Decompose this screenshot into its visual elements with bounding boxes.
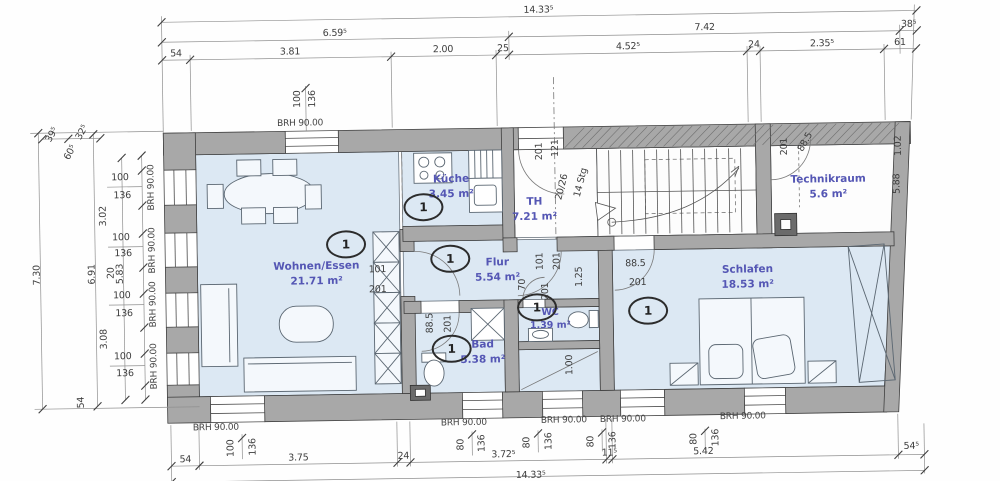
dim-left-chain: 3.08 xyxy=(100,329,110,350)
room-name: Flur xyxy=(486,255,510,270)
door-dim: 201 xyxy=(369,285,387,295)
brh-label: BRH 90.00 xyxy=(150,343,160,389)
brh-label: BRH 90.00 xyxy=(148,227,158,273)
room-name: TH xyxy=(526,195,542,210)
dim-left-chain: 100 xyxy=(111,173,129,183)
window-dim: 136 xyxy=(544,432,554,450)
dim-bottom-detail: 54 xyxy=(179,455,191,465)
dim-left-overall: 7.30 xyxy=(33,265,43,286)
dim-bottom-detail: 3.72⁵ xyxy=(491,450,515,460)
room-name: Bad xyxy=(471,337,494,352)
stair-label: 121 xyxy=(551,139,561,157)
dim-top-overall: 14.33⁵ xyxy=(523,5,553,15)
floor-plan-scene: Wohnen/Essen 21.71 m² Küche 3.45 m² Flur… xyxy=(0,0,1000,481)
room-name: Küche xyxy=(433,172,469,187)
door-dim: 88.5 xyxy=(425,313,435,334)
marker-number: 1 xyxy=(342,237,351,251)
floor-plan: Wohnen/Essen 21.71 m² Küche 3.45 m² Flur… xyxy=(0,0,1000,481)
dim-left-chain: 136 xyxy=(115,309,133,319)
door-dim: 201 xyxy=(541,282,551,300)
door-dim: 201 xyxy=(629,278,647,288)
dim-top-mid: 7.42 xyxy=(694,23,715,33)
dim-bottom-detail: 54⁵ xyxy=(904,442,919,452)
stair-label: 201 xyxy=(535,143,545,161)
window-dim: 80 xyxy=(689,433,699,445)
dim-right: 5.88 xyxy=(892,174,902,195)
dim-left-chain: 20 xyxy=(107,267,117,279)
furniture-shelf xyxy=(373,232,401,384)
dim-top-detail: 2.35⁵ xyxy=(810,39,834,49)
dim-left-mid: 6.91 xyxy=(88,264,98,285)
door-dim: 70 xyxy=(518,279,528,291)
door-dim: 101 xyxy=(535,253,545,271)
window-dim: 136 xyxy=(608,431,618,449)
dim-left-chain: 136 xyxy=(114,249,132,259)
door-dim: 201 xyxy=(780,138,790,156)
dim-top-detail: 54 xyxy=(170,49,182,59)
window-dim: 100 xyxy=(226,439,236,457)
marker-number: 1 xyxy=(644,304,653,318)
dim-top-detail: 24 xyxy=(748,40,760,50)
dim-left-chain: 100 xyxy=(114,352,132,362)
marker-number: 1 xyxy=(419,200,428,214)
room-name: Wohnen/Essen xyxy=(273,259,359,275)
room-area: 18.53 m² xyxy=(721,277,774,293)
marker-number: 1 xyxy=(446,252,455,266)
dim-top-detail: 3.81 xyxy=(280,47,301,57)
window-dim: 80 xyxy=(586,436,596,448)
door-dim: 1.00 xyxy=(565,355,575,376)
room-label-technikraum: Technikraum 5.6 m² xyxy=(790,172,866,203)
door-dim: 201 xyxy=(443,315,453,333)
room-label-schlafen: Schlafen 18.53 m² xyxy=(721,262,774,292)
dim-bottom-detail: 5.42 xyxy=(693,447,714,457)
window-dim: 100 xyxy=(293,90,303,108)
brh-label: BRH 90.00 xyxy=(277,119,323,129)
dim-bottom-overall: 14.33⁵ xyxy=(516,471,546,481)
room-label-wohnen-essen: Wohnen/Essen 21.71 m² xyxy=(273,259,360,290)
window-dim: 80 xyxy=(456,439,466,451)
window-dim: 136 xyxy=(248,438,258,456)
room-area: 21.71 m² xyxy=(290,273,343,289)
brh-label: BRH 90.00 xyxy=(147,164,157,210)
room-name: Technikraum xyxy=(790,172,866,188)
room-area: 5.6 m² xyxy=(809,187,847,202)
dim-left-chain: 136 xyxy=(113,191,131,201)
brh-label: BRH 90.00 xyxy=(149,281,159,327)
dim-bottom-detail: 3.75 xyxy=(288,453,309,463)
dim-top-detail: 2.00 xyxy=(433,45,454,55)
door-dim: 88.5 xyxy=(625,259,646,269)
brh-label: BRH 90.00 xyxy=(193,424,239,434)
dim-left-chain: 3.02 xyxy=(99,206,109,227)
dim-top-mid: 38⁵ xyxy=(901,20,916,30)
room-name: Schlafen xyxy=(722,262,773,277)
dim-top-mid: 6.59⁵ xyxy=(323,29,347,39)
door-dim: 101 xyxy=(369,265,387,275)
dim-left-chain: 136 xyxy=(116,369,134,379)
window-dim: 136 xyxy=(711,429,721,447)
dim-top-detail: 25 xyxy=(497,44,509,54)
dim-top-detail: 61 xyxy=(894,38,906,48)
marker-number: 1 xyxy=(533,300,542,314)
room-area: 5.54 m² xyxy=(475,270,520,285)
dim-bottom-detail: 11⁵ xyxy=(602,448,617,458)
brh-label: BRH 90.00 xyxy=(441,419,487,429)
door-dim: 201 xyxy=(552,252,562,270)
room-area: 7.21 m² xyxy=(512,209,557,224)
dim-left-chain: 100 xyxy=(113,291,131,301)
marker-number: 1 xyxy=(447,342,456,356)
window-dim: 136 xyxy=(308,90,318,108)
dim-top-detail: 4.52⁵ xyxy=(616,42,640,52)
brh-label: BRH 90.00 xyxy=(600,415,646,425)
dim-left-chain: 54 xyxy=(77,397,87,409)
door-dim: 1.25 xyxy=(575,267,585,288)
brh-label: BRH 90.00 xyxy=(720,412,766,422)
room-label-flur: Flur 5.54 m² xyxy=(475,255,521,285)
dim-left-chain: 100 xyxy=(112,233,130,243)
room-label-th: TH 7.21 m² xyxy=(512,194,558,224)
dim-left-inner: 5.83 xyxy=(116,264,126,285)
window-dim: 136 xyxy=(477,434,487,452)
dim-bottom-detail: 24 xyxy=(397,452,409,462)
dim-right: 1.02 xyxy=(894,135,904,156)
brh-label: BRH 90.00 xyxy=(541,416,587,426)
window-dim: 80 xyxy=(522,437,532,449)
